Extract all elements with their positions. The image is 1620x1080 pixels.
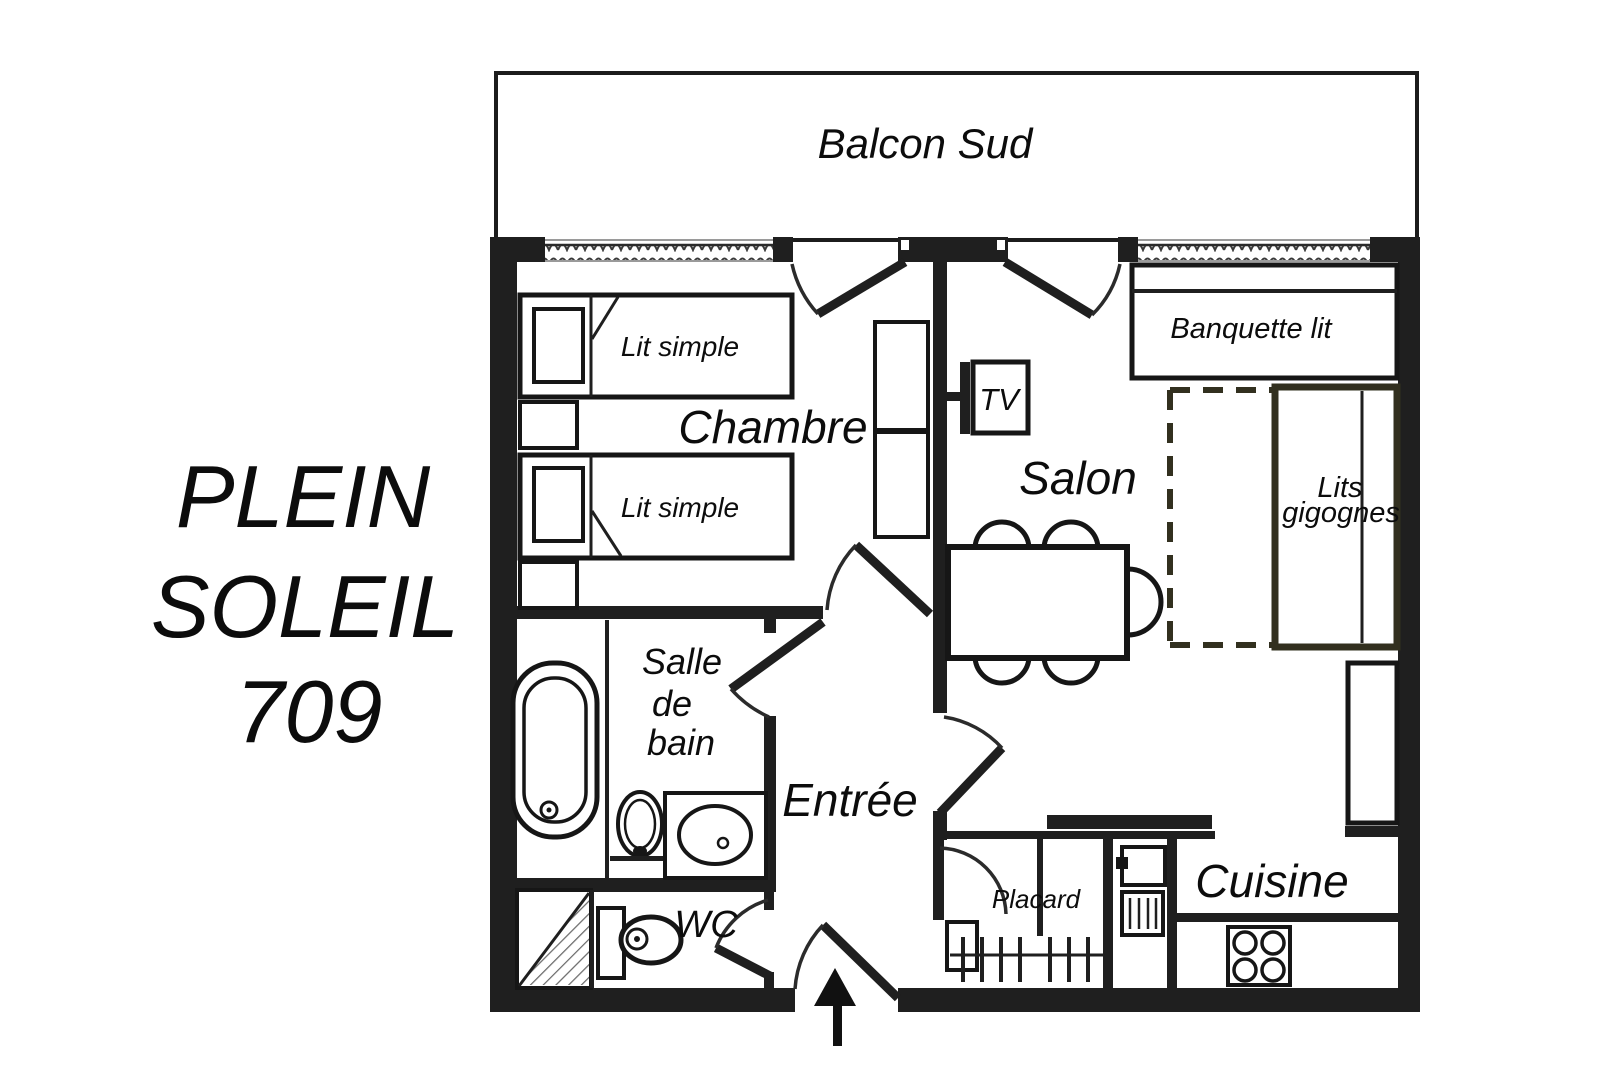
living-wardrobe-base [1345,826,1398,837]
title-line-2: SOLEIL [151,557,459,656]
wc-door-leaf [716,948,770,976]
bidet-outlet [633,846,647,856]
living-door-swing [944,717,1002,748]
window-radiator-hatch [545,246,773,260]
entry-hall: Entrée [782,774,918,826]
kitchen-label: Cuisine [1195,855,1348,907]
fridge-handle [1116,857,1128,869]
bathroom-label-1: Salle [642,641,722,682]
bedroom-balcony-door-swing [792,264,818,314]
bathroom-label-2: de [652,683,692,724]
entrance-arrow-shaft [833,1002,842,1046]
living-label: Salon [1019,452,1137,504]
bedroom-label: Chambre [678,401,867,453]
title-line-3: 709 [236,662,383,761]
living-wardrobe [1348,663,1397,823]
wall-appliance-left [1103,839,1113,990]
wall-bottom-right [898,988,1420,1012]
entry-label: Entrée [782,774,918,826]
sofa-bed-label: Banquette lit [1170,313,1333,345]
bedroom-door-swing [827,545,856,610]
living-door-leaf [940,748,1002,813]
toilet-bowl-dot [634,936,640,942]
dining-table [948,547,1127,658]
wall-top-post-right [1118,237,1138,262]
bidet-pedestal [610,856,667,861]
stove-burner [1262,959,1284,981]
bedroom-door-leaf [856,545,930,614]
bed-2-pillow [534,468,583,541]
nesting-beds-label-2: gigognes [1282,497,1400,529]
entrance-arrow-head [814,968,856,1006]
bathtub-inner [524,678,586,822]
sink [679,806,751,864]
wall-left [490,237,517,1012]
bed-1-pillow [534,309,583,382]
wall-top-post-left [773,237,793,262]
wall-top-center-block [898,237,1008,262]
stove-burner [1262,932,1284,954]
bed-1-label: Lit simple [621,331,739,362]
bathroom-door-swing [731,689,769,717]
stove-burner [1234,959,1256,981]
floor-plan-canvas: PLEIN SOLEIL 709 Balcon Sud [0,0,1620,1080]
wall-bottom-left [490,988,795,1012]
bathroom-door-leaf [731,622,823,689]
closet-label: Placard [992,884,1082,914]
wc-room: WC [517,890,738,988]
living-balcony-door-swing [1092,264,1120,315]
stove-burner [1234,932,1256,954]
living-room: TV Salon Banquette lit Lits gigognes [945,265,1400,837]
fridge [1122,847,1165,885]
wall-right [1398,237,1420,1012]
title-line-1: PLEIN [176,447,431,546]
floor-plan-page: PLEIN SOLEIL 709 Balcon Sud [0,0,1620,1080]
wall-appliance-right [1167,839,1177,990]
wall-top-corner-left [490,237,545,262]
bedroom-window [545,237,773,262]
plan-title: PLEIN SOLEIL 709 [151,447,459,761]
kitchen-counter-edge [1177,913,1398,922]
living-window [1138,237,1370,262]
bathroom: Salle de bain [513,620,766,878]
kitchen-bar-counter [1047,815,1212,829]
living-balcony-door-leaf [1005,262,1092,315]
wc-label: WC [674,904,738,946]
balcony-label: Balcon Sud [818,120,1034,167]
sink-drain [718,838,728,848]
window-radiator-hatch [1138,246,1370,260]
balcony: Balcon Sud [496,73,1417,240]
wall-closet-left-stub [933,840,944,920]
door-hinge-notch-left [900,239,910,251]
tv-label: TV [979,382,1022,417]
bathtub-drain-dot [547,808,552,813]
nightstand-2 [520,562,577,608]
wall-entry-kitchen [933,831,1215,839]
tv-mount-arm [945,392,962,401]
entrance-door-swing [795,925,823,989]
bedroom-balcony-door-leaf [818,262,905,314]
bedroom-wardrobe-lower [875,432,928,537]
closet: Placard [947,884,1103,982]
wall-top-corner-right [1370,237,1420,262]
tv-mount-bar [960,362,970,434]
bidet-inner [625,800,655,848]
bathroom-label-3: bain [647,722,715,763]
bed-2-label: Lit simple [621,492,739,523]
bedroom-wardrobe-upper [875,322,928,430]
door-hinge-notch-right [996,239,1006,251]
entrance-arrow [814,968,856,1046]
wall-bath-stub-top [764,619,776,633]
nightstand-1 [520,402,577,448]
wall-bedroom-living [933,258,947,713]
